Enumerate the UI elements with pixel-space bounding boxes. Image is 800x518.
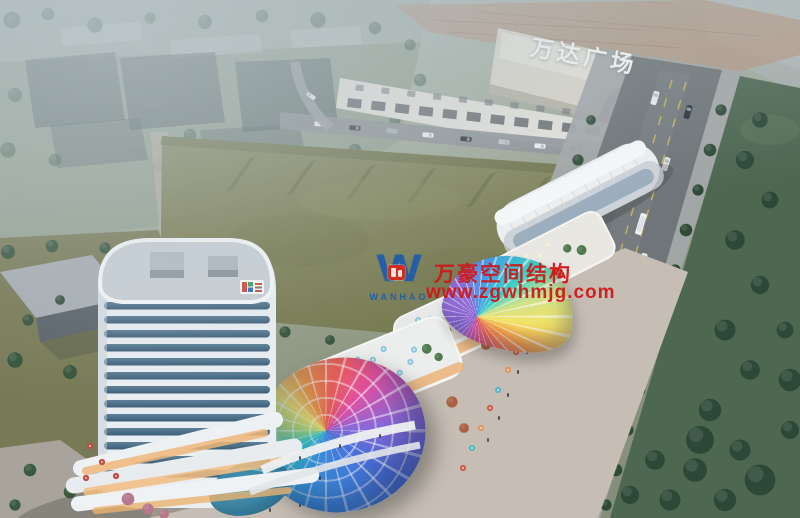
watermark: W WANHAO 万豪空间结构 www.zgwhmjg.com [364, 250, 586, 314]
aerial-architectural-rendering: 万达广场 W WANHAO 万豪空间结构 www.zgwhmjg.com [0, 0, 800, 518]
wanhao-logo: W WANHAO [370, 252, 428, 310]
wanhao-logo-badge [388, 265, 405, 280]
tower-brand-logo [240, 280, 264, 294]
office-tower [13, 240, 320, 518]
wanhao-logo-text: WANHAO [366, 292, 432, 302]
watermark-website: www.zgwhmjg.com [426, 282, 616, 304]
